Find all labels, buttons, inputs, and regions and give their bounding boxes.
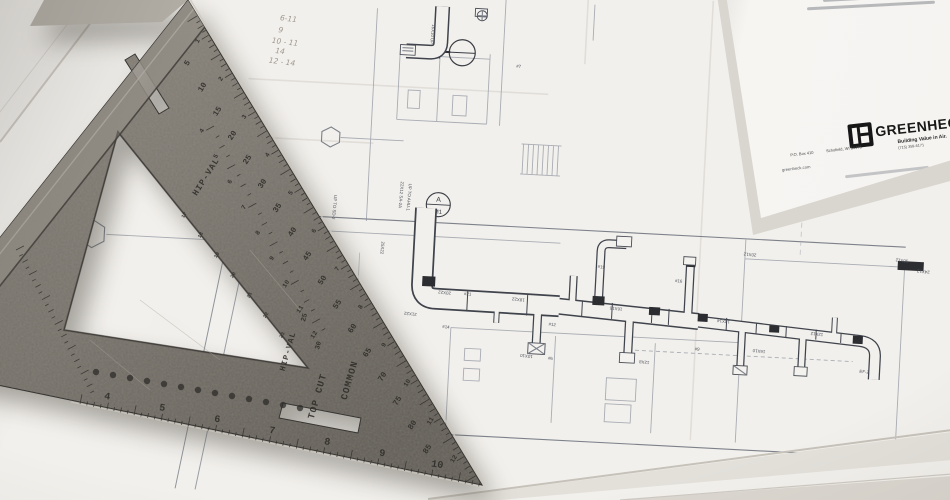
svg-text:10: 10 <box>430 459 444 472</box>
fence-lip-top <box>30 0 188 26</box>
speed-square: 1234567891011125101520253035404550556065… <box>0 0 950 500</box>
square-texture <box>0 0 482 485</box>
photo-scene: A M1 <box>0 0 950 500</box>
photo-of-blueprints: { "letterhead": { "brand": "GREENHECK", … <box>0 0 950 500</box>
